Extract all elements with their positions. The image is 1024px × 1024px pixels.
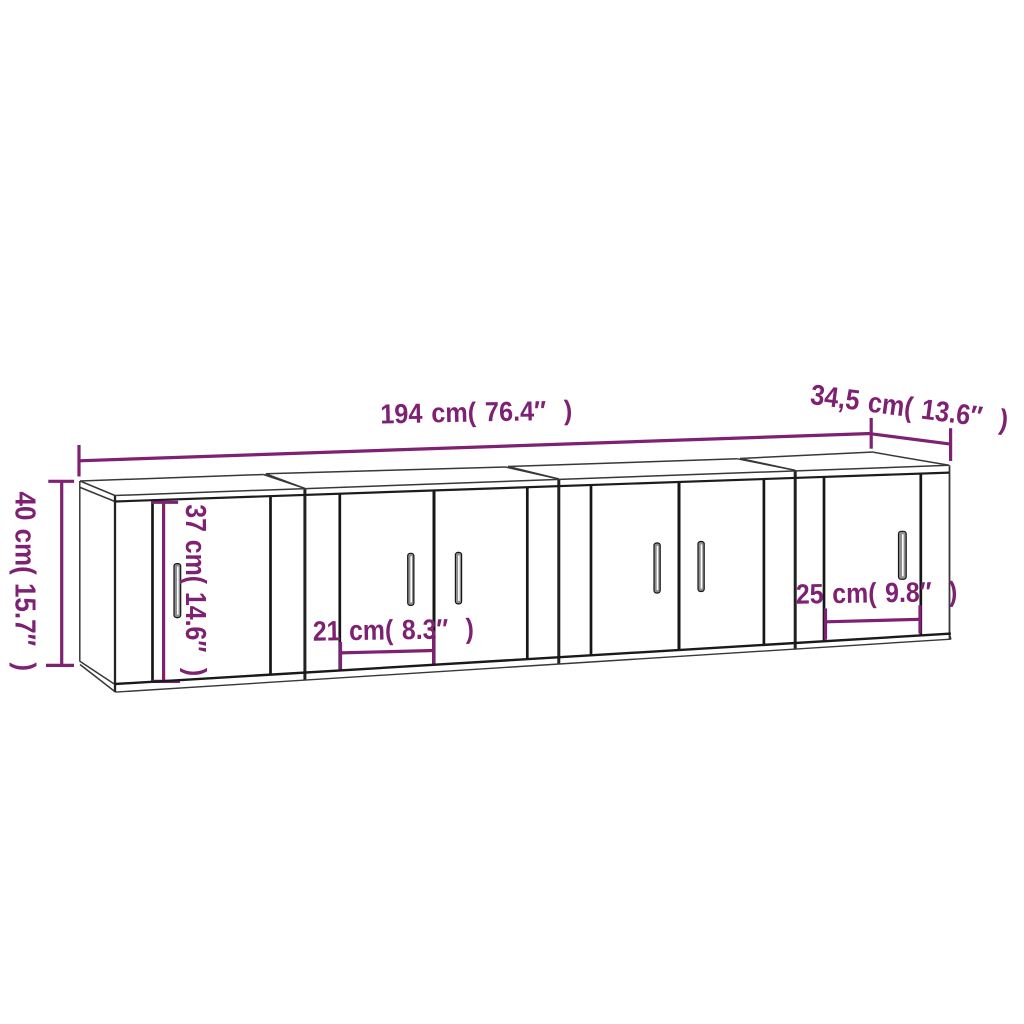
svg-text:40 cm( 15.7″ ): 40 cm( 15.7″ ) bbox=[8, 492, 40, 672]
svg-text:25 cm( 9.8″ ): 25 cm( 9.8″ ) bbox=[796, 576, 958, 610]
svg-text:21 cm( 8.3″ ): 21 cm( 8.3″ ) bbox=[313, 613, 475, 647]
svg-text:194 cm( 76.4″ ): 194 cm( 76.4″ ) bbox=[380, 394, 573, 429]
svg-text:37 cm( 14.6″ ): 37 cm( 14.6″ ) bbox=[179, 504, 211, 676]
